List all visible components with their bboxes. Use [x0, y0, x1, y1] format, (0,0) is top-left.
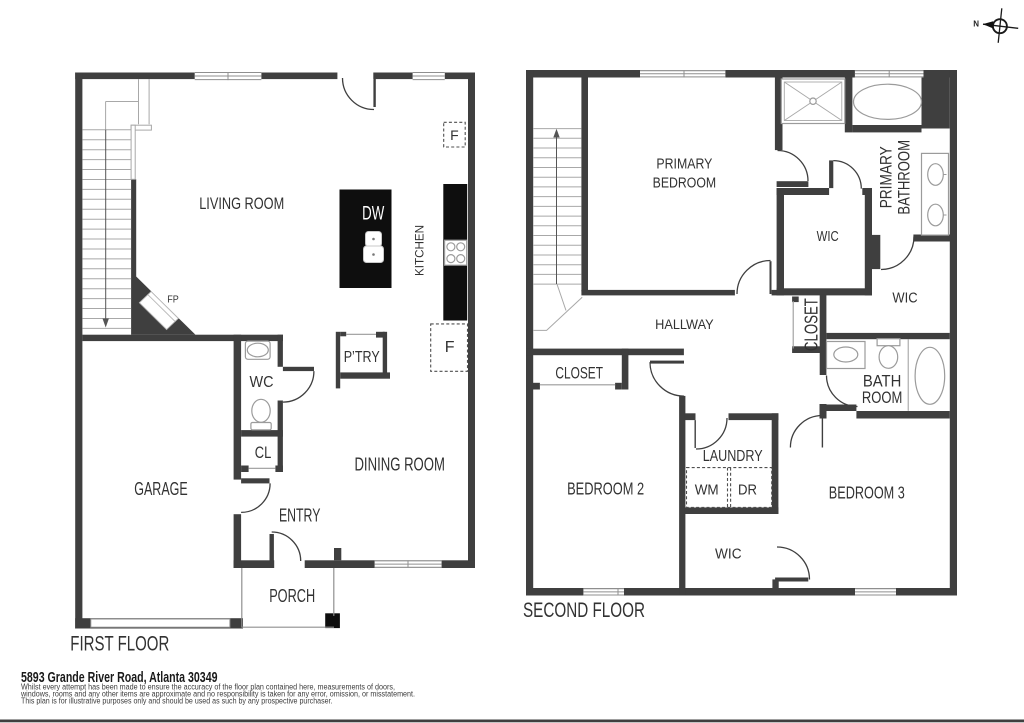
svg-text:BEDROOM 3: BEDROOM 3: [829, 482, 905, 502]
svg-text:F: F: [445, 339, 455, 356]
svg-text:WC: WC: [250, 374, 274, 391]
svg-text:WIC: WIC: [715, 545, 742, 562]
svg-text:ENTRY: ENTRY: [279, 505, 321, 525]
svg-text:P’TRY: P’TRY: [344, 349, 380, 366]
svg-text:LIVING ROOM: LIVING ROOM: [199, 194, 284, 213]
svg-text:ROOM: ROOM: [862, 388, 903, 407]
svg-text:N: N: [973, 20, 979, 29]
svg-text:PORCH: PORCH: [269, 585, 315, 606]
svg-text:This plan is for illustrative: This plan is for illustrative purposes o…: [21, 697, 333, 706]
svg-text:BEDROOM 2: BEDROOM 2: [567, 478, 644, 498]
svg-text:FIRST FLOOR: FIRST FLOOR: [70, 631, 169, 655]
svg-text:BATHROOM: BATHROOM: [894, 140, 913, 215]
svg-text:SECOND FLOOR: SECOND FLOOR: [523, 598, 645, 622]
svg-text:PRIMARY: PRIMARY: [656, 156, 712, 173]
svg-text:WIC: WIC: [892, 289, 917, 306]
svg-text:KITCHEN: KITCHEN: [412, 225, 426, 276]
svg-text:CLOSET: CLOSET: [555, 364, 603, 383]
svg-text:LAUNDRY: LAUNDRY: [703, 448, 763, 465]
svg-text:PRIMARY: PRIMARY: [878, 146, 896, 208]
svg-text:WIC: WIC: [817, 228, 839, 245]
svg-text:CLOSET: CLOSET: [801, 298, 822, 351]
svg-text:F: F: [450, 127, 459, 143]
svg-text:BEDROOM: BEDROOM: [653, 174, 717, 191]
svg-text:CL: CL: [255, 444, 272, 462]
svg-text:GARAGE: GARAGE: [134, 479, 188, 499]
svg-text:WM: WM: [695, 482, 719, 499]
svg-text:DINING ROOM: DINING ROOM: [354, 453, 445, 474]
svg-text:HALLWAY: HALLWAY: [655, 316, 714, 332]
svg-text:FP: FP: [167, 294, 179, 306]
svg-text:DR: DR: [738, 482, 757, 499]
svg-text:DW: DW: [362, 204, 384, 225]
